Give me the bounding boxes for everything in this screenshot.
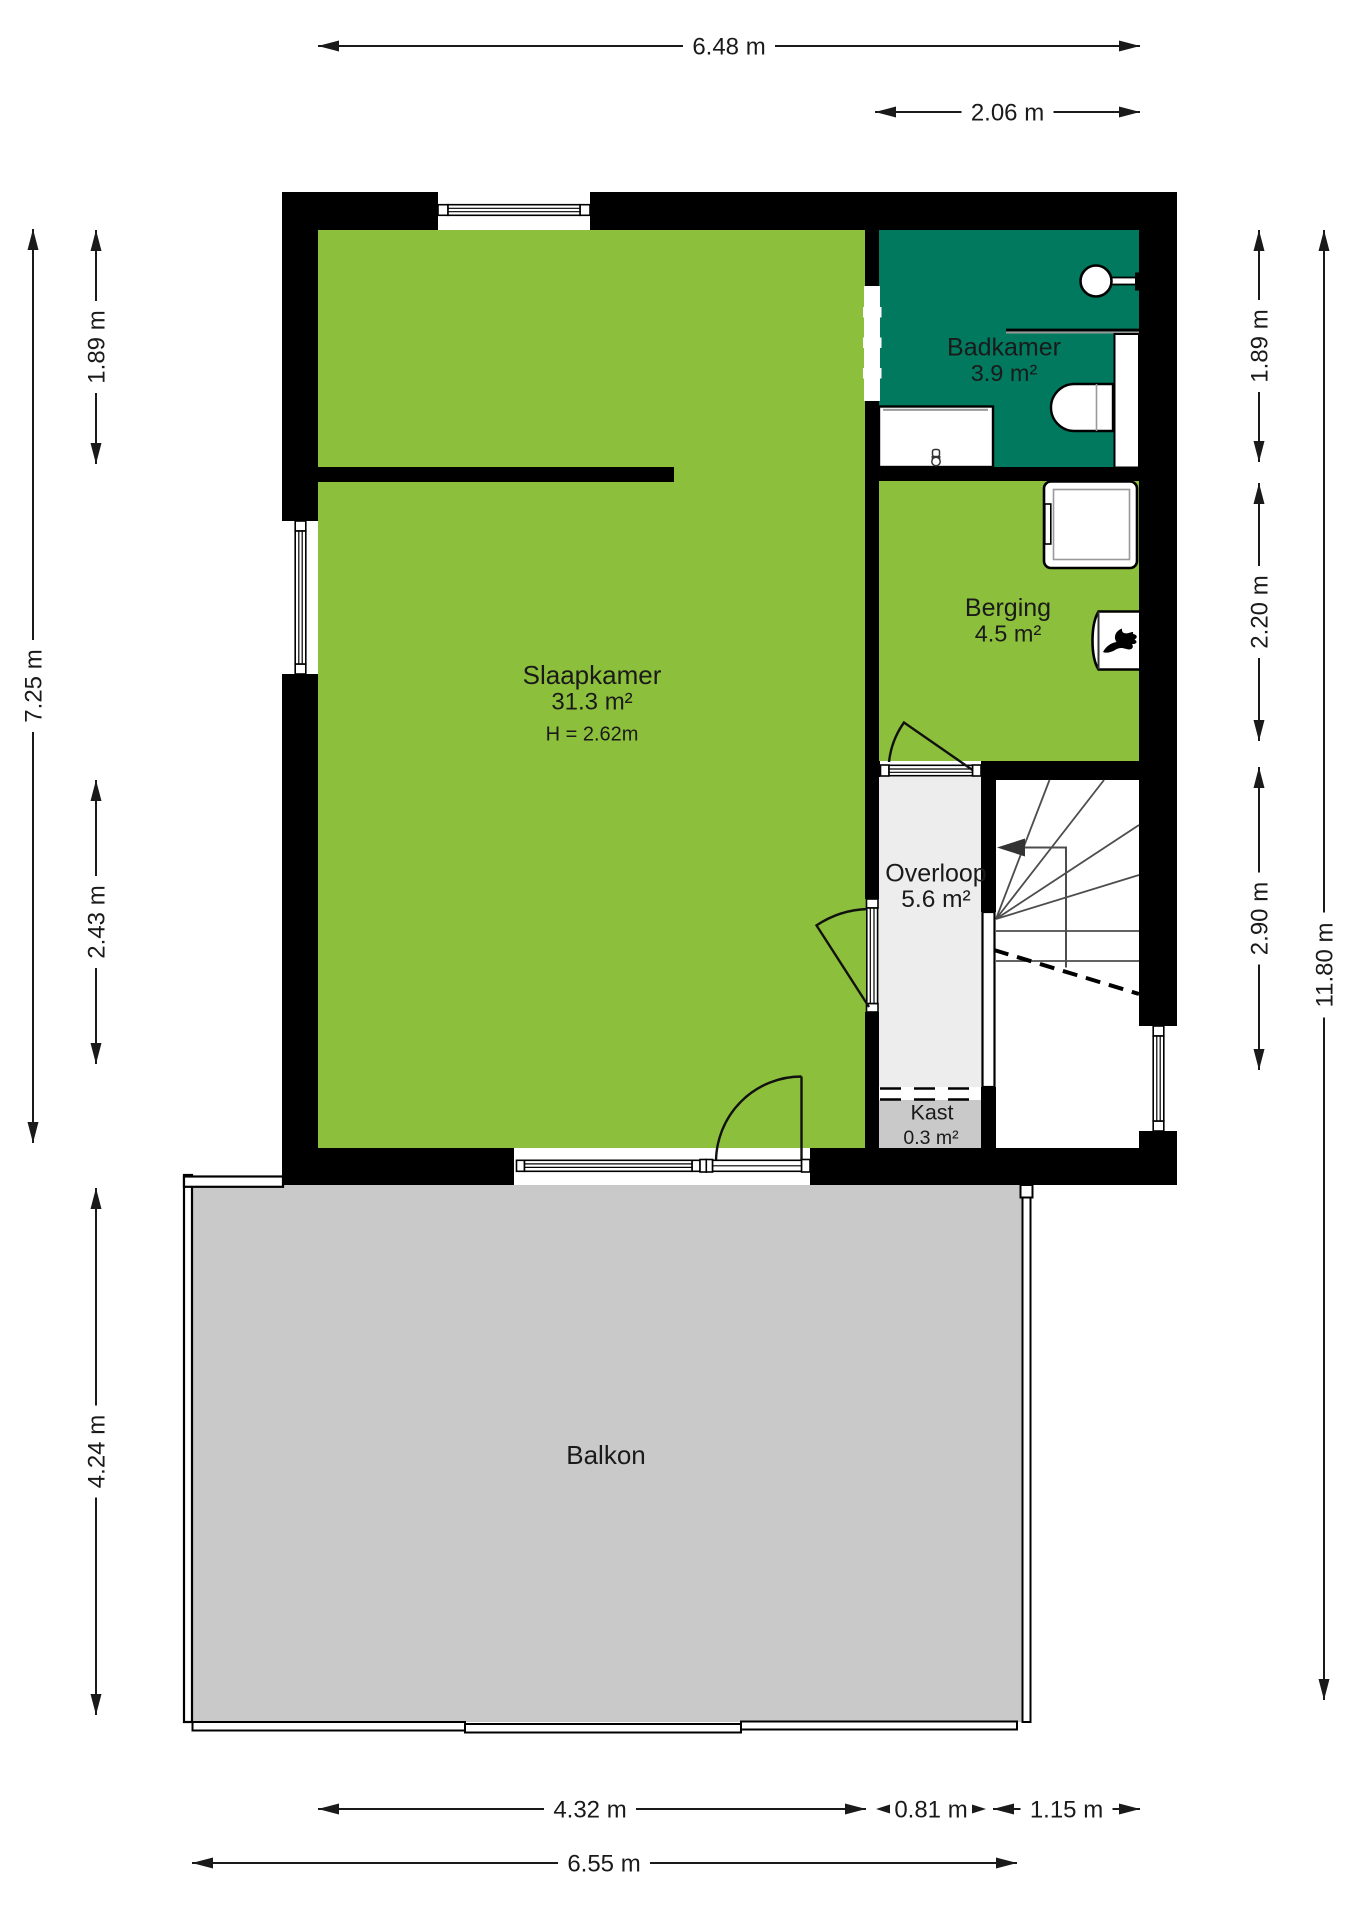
- svg-text:Balkon: Balkon: [566, 1440, 646, 1470]
- svg-text:Overloop: Overloop: [885, 860, 986, 888]
- svg-text:0.81 m: 0.81 m: [894, 1797, 967, 1824]
- svg-text:1.15 m: 1.15 m: [1030, 1797, 1103, 1824]
- svg-text:3.9 m²: 3.9 m²: [971, 360, 1038, 386]
- svg-text:11.80 m: 11.80 m: [1312, 923, 1339, 1008]
- svg-text:Kast: Kast: [910, 1101, 953, 1125]
- svg-text:2.06 m: 2.06 m: [971, 100, 1044, 127]
- svg-text:Berging: Berging: [965, 594, 1051, 622]
- svg-text:31.3 m²: 31.3 m²: [551, 689, 632, 716]
- svg-text:4.5 m²: 4.5 m²: [975, 621, 1042, 647]
- svg-text:2.20 m: 2.20 m: [1247, 575, 1274, 648]
- svg-text:5.6 m²: 5.6 m²: [901, 886, 970, 913]
- svg-text:Badkamer: Badkamer: [947, 334, 1061, 362]
- svg-text:6.55 m: 6.55 m: [567, 1851, 640, 1878]
- svg-text:4.24 m: 4.24 m: [84, 1415, 111, 1488]
- svg-text:2.90 m: 2.90 m: [1247, 882, 1274, 955]
- svg-text:1.89 m: 1.89 m: [1247, 309, 1274, 382]
- svg-text:7.25 m: 7.25 m: [21, 649, 48, 722]
- svg-text:Slaapkamer: Slaapkamer: [523, 660, 662, 690]
- svg-text:0.3 m²: 0.3 m²: [903, 1127, 959, 1149]
- svg-text:6.48 m: 6.48 m: [692, 34, 765, 61]
- svg-text:1.89 m: 1.89 m: [84, 310, 111, 383]
- svg-text:2.43 m: 2.43 m: [84, 885, 111, 958]
- svg-text:4.32 m: 4.32 m: [553, 1797, 626, 1824]
- svg-text:H = 2.62m: H = 2.62m: [546, 724, 639, 746]
